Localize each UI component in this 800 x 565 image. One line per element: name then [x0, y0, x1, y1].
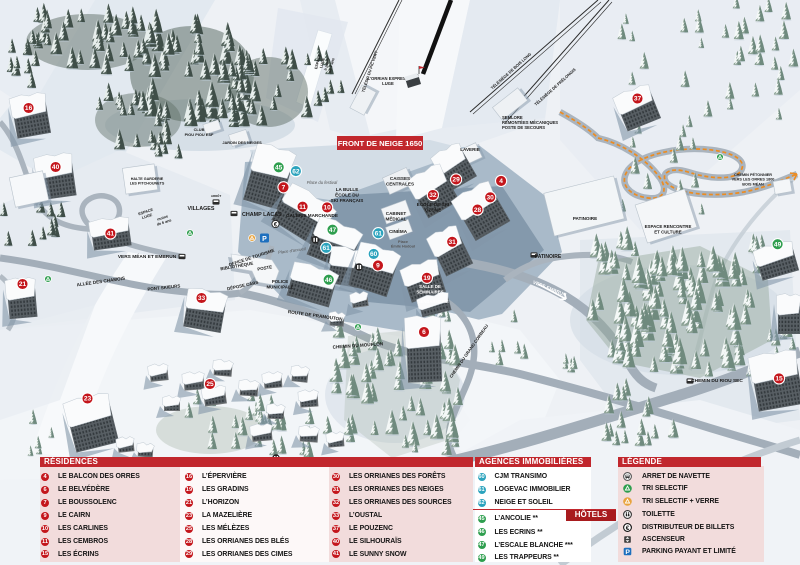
svg-text:7: 7: [282, 185, 286, 192]
svg-text:GENDARMERIE: GENDARMERIE: [417, 299, 449, 304]
svg-text:9: 9: [376, 263, 380, 270]
svg-text:15: 15: [775, 376, 783, 383]
svg-text:61: 61: [323, 245, 331, 252]
svg-text:45: 45: [275, 165, 283, 172]
svg-text:ARRÊT: ARRÊT: [211, 193, 222, 198]
svg-text:CINÉMA: CINÉMA: [389, 227, 408, 234]
svg-text:JARDIN DES NEIGES: JARDIN DES NEIGES: [222, 140, 262, 145]
svg-text:CABINETMÉDICAL: CABINETMÉDICAL: [386, 211, 407, 222]
svg-text:6: 6: [422, 329, 426, 336]
svg-text:60: 60: [370, 251, 378, 258]
svg-text:37: 37: [634, 96, 642, 103]
svg-text:10: 10: [323, 205, 331, 212]
svg-text:P: P: [625, 549, 630, 556]
svg-text:FRONT DE NEIGE 1650: FRONT DE NEIGE 1650: [338, 139, 423, 148]
svg-text:31: 31: [449, 239, 457, 246]
svg-text:PATINOIRE: PATINOIRE: [573, 216, 597, 221]
svg-text:19: 19: [423, 275, 431, 282]
svg-text:Place du festival: Place du festival: [307, 180, 339, 185]
svg-text:28: 28: [474, 207, 482, 214]
svg-text:61: 61: [375, 230, 383, 237]
svg-text:62: 62: [292, 168, 300, 175]
svg-text:21: 21: [19, 281, 27, 288]
svg-text:40: 40: [52, 164, 60, 171]
svg-text:16: 16: [25, 105, 33, 112]
svg-text:47: 47: [329, 227, 337, 234]
svg-text:11: 11: [299, 204, 306, 211]
svg-text:32: 32: [429, 192, 437, 199]
svg-text:P: P: [262, 236, 267, 243]
svg-text:23: 23: [84, 396, 92, 403]
svg-text:CHAMP LACAS: CHAMP LACAS: [242, 212, 282, 218]
svg-text:CHEMIN DU RIOU SEC: CHEMIN DU RIOU SEC: [691, 378, 743, 384]
svg-text:46: 46: [325, 277, 333, 284]
svg-text:41: 41: [107, 231, 115, 238]
svg-text:VILLAGES: VILLAGES: [188, 206, 215, 212]
svg-text:33: 33: [198, 295, 206, 302]
svg-text:29: 29: [452, 177, 460, 184]
svg-text:LAVERIE: LAVERIE: [460, 147, 480, 152]
svg-text:HALTE GARDERIELES PITCHOUNETS: HALTE GARDERIELES PITCHOUNETS: [130, 177, 165, 186]
svg-text:25: 25: [206, 381, 214, 388]
svg-text:49: 49: [774, 241, 782, 248]
svg-text:SALLE DESÉMINAIRES: SALLE DESÉMINAIRES: [416, 284, 443, 294]
svg-text:CAISSESCENTRALES: CAISSESCENTRALES: [386, 176, 414, 187]
svg-text:€: €: [626, 525, 630, 532]
svg-text:4: 4: [499, 178, 503, 185]
svg-text:PATINOIRE: PATINOIRE: [535, 254, 562, 260]
svg-text:30: 30: [487, 195, 495, 202]
svg-text:GALERIE MARCHANDE: GALERIE MARCHANDE: [286, 213, 338, 218]
